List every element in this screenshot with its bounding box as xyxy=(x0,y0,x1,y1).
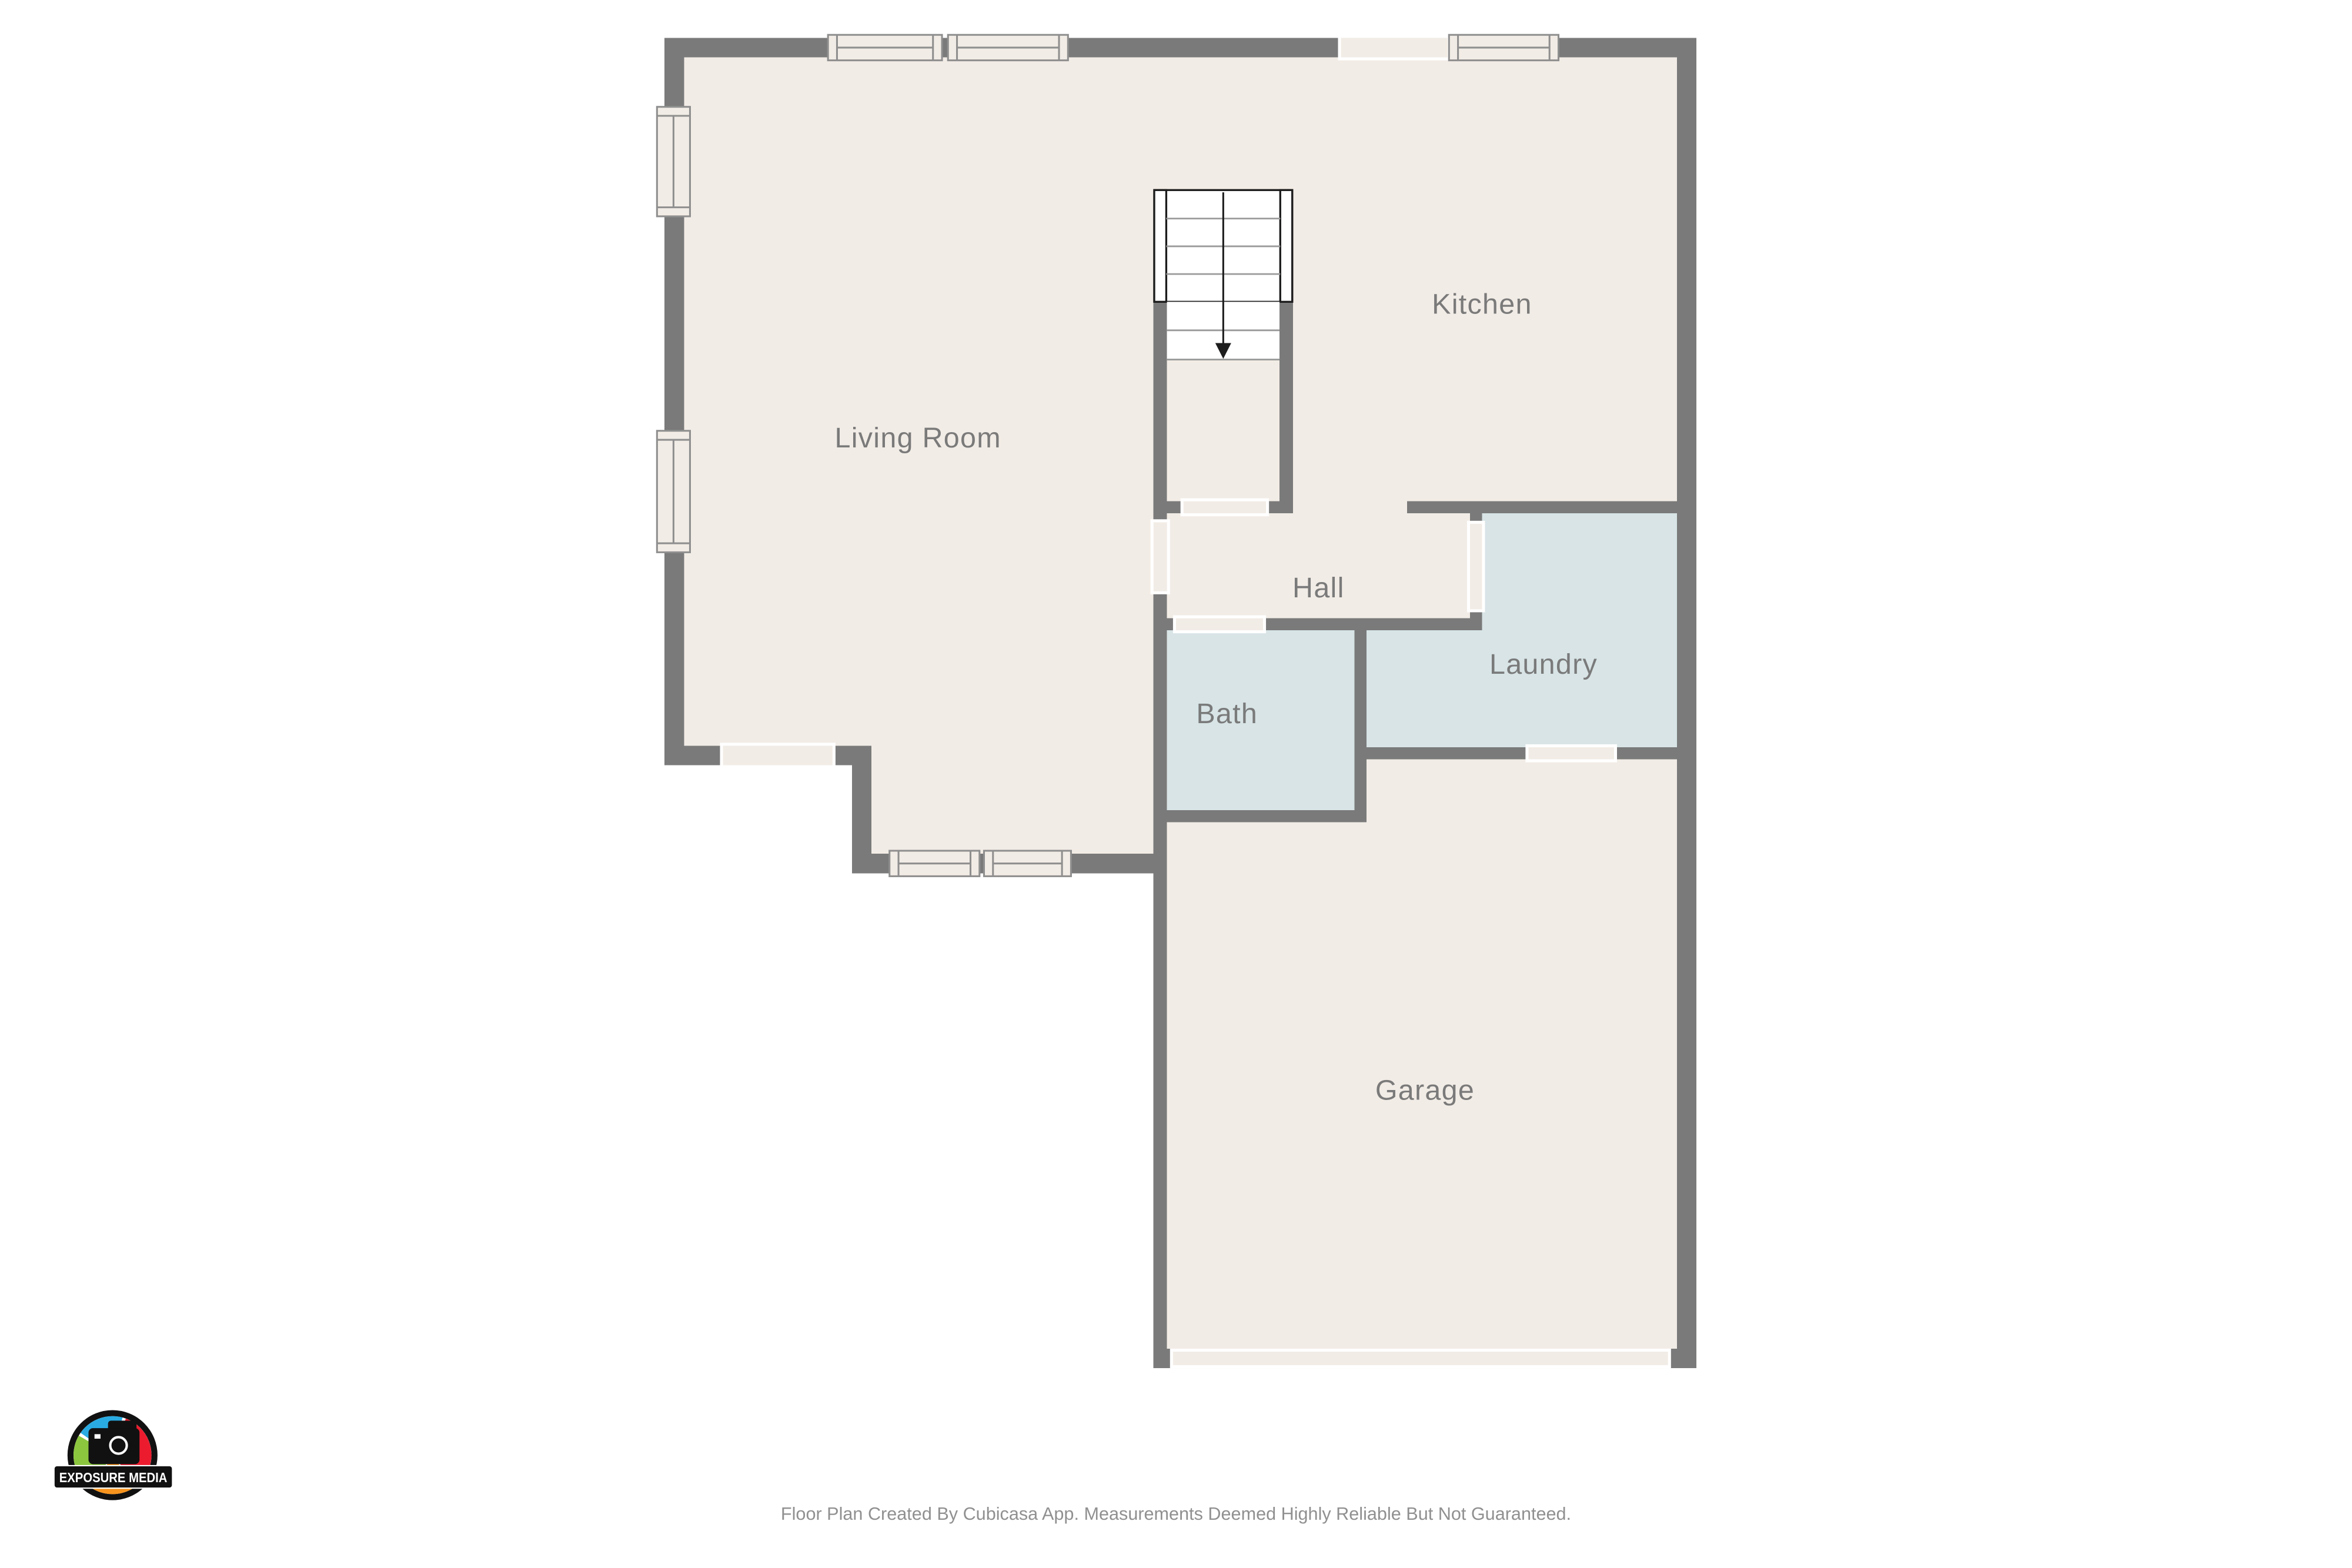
room-label-laundry: Laundry xyxy=(1489,648,1598,680)
footer-disclaimer: Floor Plan Created By Cubicasa App. Meas… xyxy=(781,1504,1571,1524)
floor-plan-canvas: Living Room Kitchen Hall Laundry Bath Ga… xyxy=(0,0,2352,1568)
window-top-1 xyxy=(828,35,942,60)
stair-rail-right xyxy=(1280,190,1292,302)
wall-bath-right xyxy=(1355,618,1367,823)
wall-kitchen-bottom xyxy=(1407,502,1696,513)
room-label-hall: Hall xyxy=(1292,572,1345,604)
wall-bath-bottom xyxy=(1154,810,1367,822)
wall-stair-right xyxy=(1279,302,1293,513)
window-bottom-1 xyxy=(890,851,980,876)
floor-plan-page: Living Room Kitchen Hall Laundry Bath Ga… xyxy=(0,0,2352,1568)
wall-interior-left-upper xyxy=(1154,302,1167,520)
door-kitchen-patio xyxy=(1339,36,1449,59)
window-bottom-2 xyxy=(984,851,1071,876)
door-hall-laundry xyxy=(1468,522,1484,611)
door-hall-bath xyxy=(1174,617,1264,632)
stair-rail-left xyxy=(1154,190,1166,302)
exposure-media-logo: EXPOSURE MEDIA xyxy=(54,1413,173,1497)
door-laundry-garage xyxy=(1527,745,1616,761)
door-living-hall xyxy=(1152,521,1168,593)
door-stairs-hall xyxy=(1182,500,1267,515)
logo-banner-text: EXPOSURE MEDIA xyxy=(59,1470,168,1485)
room-label-living-room: Living Room xyxy=(835,422,1001,454)
room-label-garage: Garage xyxy=(1375,1074,1475,1106)
window-top-2 xyxy=(948,35,1068,60)
window-left-2 xyxy=(657,431,690,553)
room-label-kitchen: Kitchen xyxy=(1432,289,1532,320)
staircase xyxy=(1154,190,1292,359)
wall-right xyxy=(1677,38,1696,1368)
wall-top-kitchen xyxy=(1559,38,1697,57)
window-kitchen xyxy=(1449,35,1558,60)
room-label-bath: Bath xyxy=(1196,698,1258,730)
door-living-exterior xyxy=(721,744,834,767)
room-bath-floor xyxy=(1167,630,1355,810)
window-left-1 xyxy=(657,107,690,216)
wall-interior-left-lower xyxy=(1154,593,1167,1368)
garage-door xyxy=(1171,1350,1669,1367)
